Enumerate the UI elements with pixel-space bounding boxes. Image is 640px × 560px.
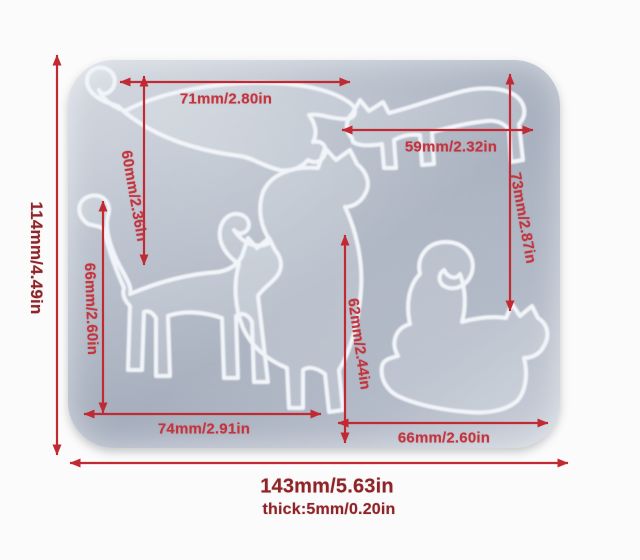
top-right-cat-width-label: 59mm/2.32in: [405, 139, 497, 156]
middle-left-cat-height-label: 66mm/2.60in: [81, 263, 101, 356]
overall-width-label: 143mm/5.63in: [260, 476, 394, 499]
product-dimension-diagram: 114mm/4.49in 143mm/5.63in thick:5mm/0.20…: [0, 0, 640, 560]
bottom-left-cat-width-label: 74mm/2.91in: [158, 421, 250, 438]
bottom-right-cat-width-label: 66mm/2.60in: [398, 430, 490, 447]
overall-height-label: 114mm/4.49in: [26, 202, 46, 315]
thickness-label: thick:5mm/0.20in: [262, 501, 395, 519]
top-left-cat-width-label: 71mm/2.80in: [180, 91, 272, 108]
